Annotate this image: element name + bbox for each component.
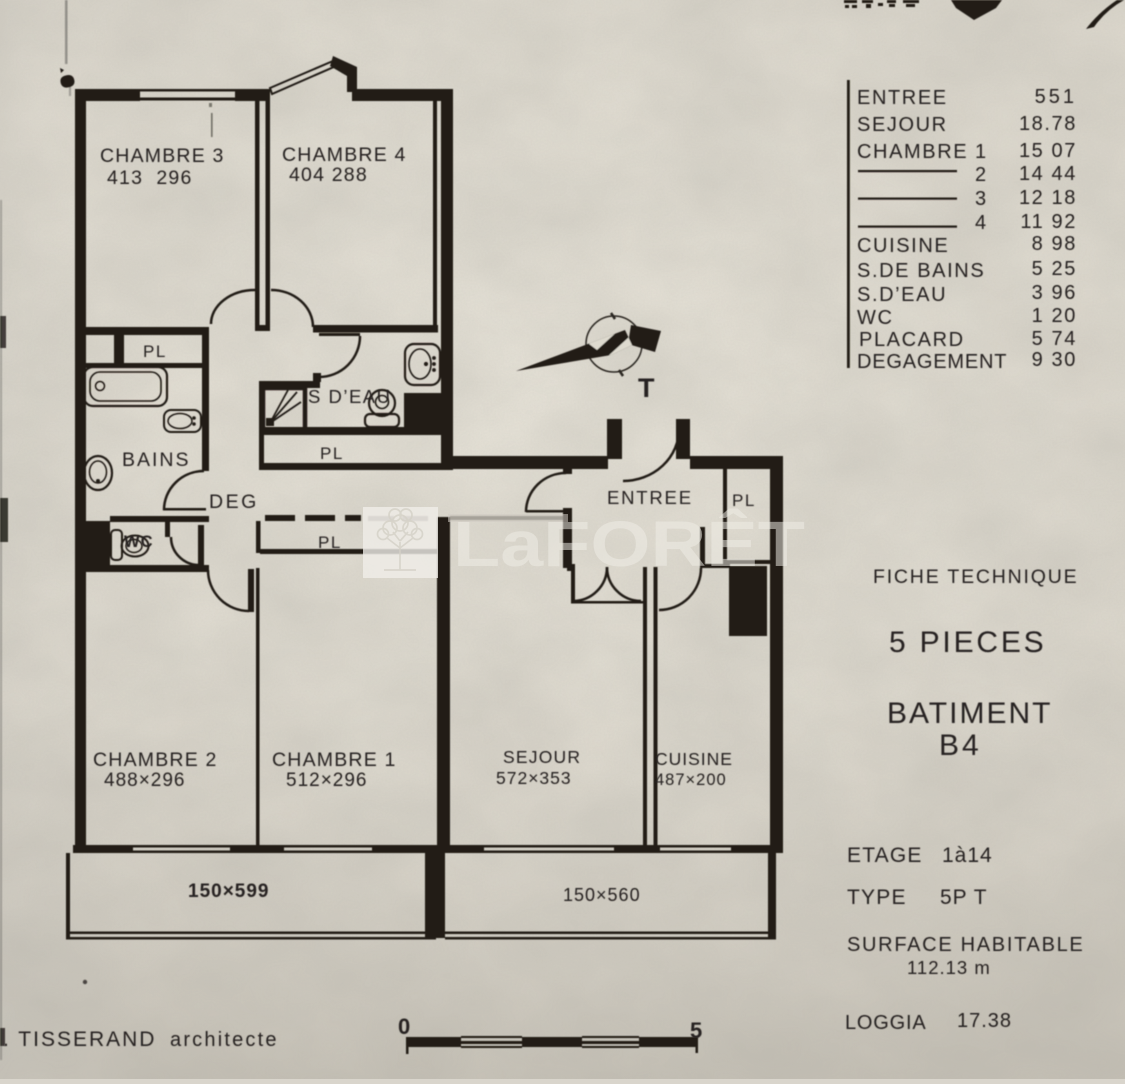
svg-text:3: 3 bbox=[975, 188, 988, 210]
svg-text:WC: WC bbox=[124, 533, 154, 551]
svg-text:SEJOUR: SEJOUR bbox=[503, 747, 581, 767]
svg-text:CHAMBRE 4: CHAMBRE 4 bbox=[282, 144, 407, 166]
svg-text:architecte: architecte bbox=[170, 1029, 279, 1051]
svg-text:5: 5 bbox=[690, 1018, 702, 1043]
svg-text:DEGAGEMENT: DEGAGEMENT bbox=[857, 351, 1007, 373]
svg-text:CHAMBRE: CHAMBRE bbox=[857, 141, 968, 163]
svg-text:12 18: 12 18 bbox=[1019, 187, 1077, 209]
svg-text:S D’EAU: S D’EAU bbox=[308, 386, 392, 407]
svg-text:PL: PL bbox=[320, 444, 344, 463]
svg-text:5P T: 5P T bbox=[940, 886, 988, 909]
svg-text:CUISINE: CUISINE bbox=[857, 235, 949, 257]
svg-text:572×353: 572×353 bbox=[496, 768, 572, 788]
svg-text:5 74: 5 74 bbox=[1032, 328, 1077, 350]
svg-text:PL: PL bbox=[318, 533, 342, 552]
svg-text:150×599: 150×599 bbox=[188, 881, 270, 902]
svg-text:WC: WC bbox=[857, 307, 894, 329]
svg-text:2: 2 bbox=[975, 164, 988, 186]
svg-text:FICHE TECHNIQUE: FICHE TECHNIQUE bbox=[873, 566, 1078, 588]
svg-text:CHAMBRE 2: CHAMBRE 2 bbox=[93, 749, 218, 771]
svg-text:CHAMBRE 1: CHAMBRE 1 bbox=[272, 749, 397, 771]
svg-text:551: 551 bbox=[1035, 86, 1077, 108]
svg-text:17.38: 17.38 bbox=[957, 1010, 1012, 1032]
svg-text:112.13 m: 112.13 m bbox=[907, 957, 991, 978]
svg-text:413 296: 413 296 bbox=[107, 167, 193, 189]
svg-text:BATIMENT: BATIMENT bbox=[887, 697, 1052, 730]
svg-text:BAINS: BAINS bbox=[122, 449, 191, 471]
svg-text:SEJOUR: SEJOUR bbox=[857, 114, 948, 136]
svg-text:ENTREE: ENTREE bbox=[857, 87, 948, 109]
svg-text:5 25: 5 25 bbox=[1032, 258, 1077, 280]
svg-text:14 44: 14 44 bbox=[1019, 163, 1077, 185]
svg-text:CHAMBRE 3: CHAMBRE 3 bbox=[100, 145, 225, 167]
svg-text:3 96: 3 96 bbox=[1032, 282, 1077, 304]
svg-text:5 PIECES: 5 PIECES bbox=[889, 626, 1046, 659]
svg-text:T: T bbox=[638, 373, 655, 403]
svg-text:S.D’EAU: S.D’EAU bbox=[857, 284, 947, 306]
svg-text:487×200: 487×200 bbox=[655, 771, 727, 789]
svg-text:1: 1 bbox=[975, 141, 988, 163]
svg-text:B4: B4 bbox=[939, 729, 982, 762]
svg-text:9 30: 9 30 bbox=[1032, 349, 1077, 371]
svg-text:4: 4 bbox=[975, 212, 988, 234]
svg-text:150×560: 150×560 bbox=[563, 885, 641, 905]
svg-text:DEG: DEG bbox=[209, 491, 259, 513]
svg-text:512×296: 512×296 bbox=[286, 770, 368, 791]
svg-text:ENTREE: ENTREE bbox=[607, 487, 693, 508]
svg-text:1à14: 1à14 bbox=[942, 844, 993, 867]
svg-text:. TISSERAND: . TISSERAND bbox=[3, 1028, 156, 1051]
svg-text:LOGGIA: LOGGIA bbox=[845, 1012, 927, 1034]
svg-text:PL: PL bbox=[143, 342, 167, 361]
svg-text:ETAGE: ETAGE bbox=[847, 844, 923, 867]
svg-text:0: 0 bbox=[398, 1014, 410, 1039]
svg-text:8 98: 8 98 bbox=[1032, 233, 1077, 255]
svg-text:404 288: 404 288 bbox=[289, 164, 368, 186]
svg-text:CUISINE: CUISINE bbox=[655, 749, 733, 769]
svg-text:LaFORÊT: LaFORÊT bbox=[453, 507, 805, 580]
svg-text:488×296: 488×296 bbox=[104, 770, 186, 791]
svg-text:SURFACE HABITABLE: SURFACE HABITABLE bbox=[847, 934, 1084, 956]
svg-text:TYPE: TYPE bbox=[847, 886, 907, 909]
svg-text:S.DE BAINS: S.DE BAINS bbox=[857, 260, 985, 282]
svg-text:PLACARD: PLACARD bbox=[859, 329, 965, 351]
svg-text:15 07: 15 07 bbox=[1019, 140, 1077, 162]
svg-text:18.78: 18.78 bbox=[1019, 113, 1077, 135]
svg-text:1 20: 1 20 bbox=[1032, 305, 1077, 327]
svg-text:11 92: 11 92 bbox=[1020, 211, 1077, 233]
